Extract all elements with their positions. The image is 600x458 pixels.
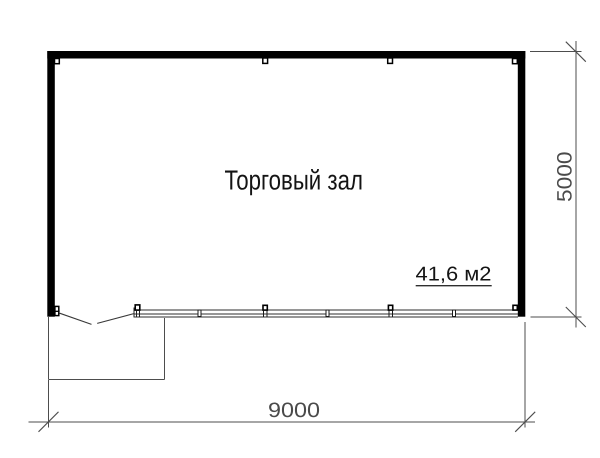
svg-text:5000: 5000 [554, 152, 577, 203]
svg-text:Торговый зал: Торговый зал [224, 164, 363, 195]
svg-text:41,6 м2: 41,6 м2 [416, 263, 492, 285]
svg-text:9000: 9000 [268, 399, 320, 422]
